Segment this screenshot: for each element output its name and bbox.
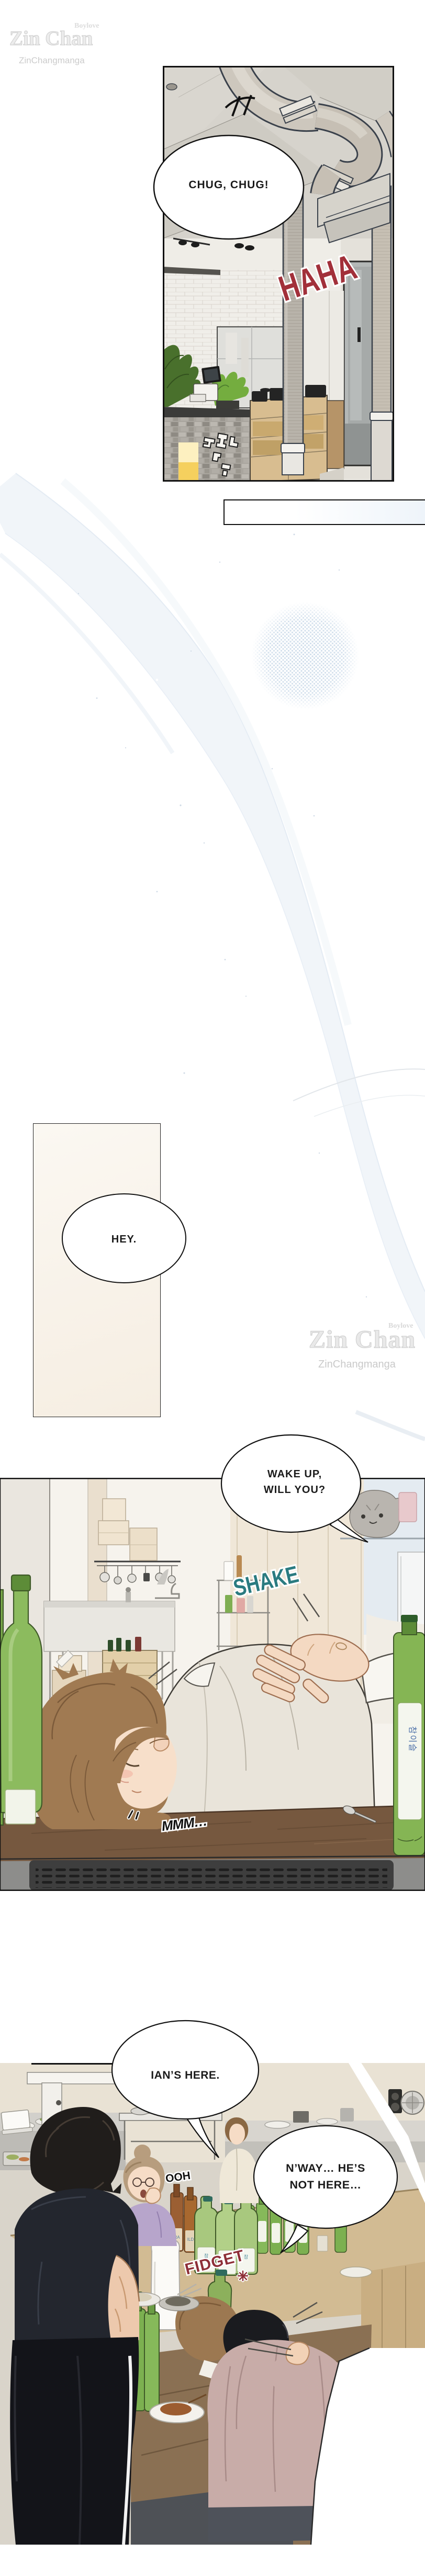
svg-text:WILL YOU?: WILL YOU? xyxy=(264,1484,326,1496)
svg-text:SHAKE: SHAKE xyxy=(231,1560,301,1601)
svg-text:FIDGET: FIDGET xyxy=(183,2247,247,2278)
svg-text:IAN’S HERE.: IAN’S HERE. xyxy=(151,2069,220,2081)
svg-text:OOH: OOH xyxy=(165,2170,192,2185)
svg-text:WAKE UP,: WAKE UP, xyxy=(267,1468,322,1480)
svg-text:CHUG, CHUG!: CHUG, CHUG! xyxy=(188,179,269,191)
svg-text:참이슬: 참이슬 xyxy=(408,1726,417,1752)
svg-text:N’WAY… HE’S: N’WAY… HE’S xyxy=(286,2162,365,2174)
svg-text:HEY.: HEY. xyxy=(111,1234,137,1245)
svg-text:NOT HERE…: NOT HERE… xyxy=(289,2179,361,2191)
